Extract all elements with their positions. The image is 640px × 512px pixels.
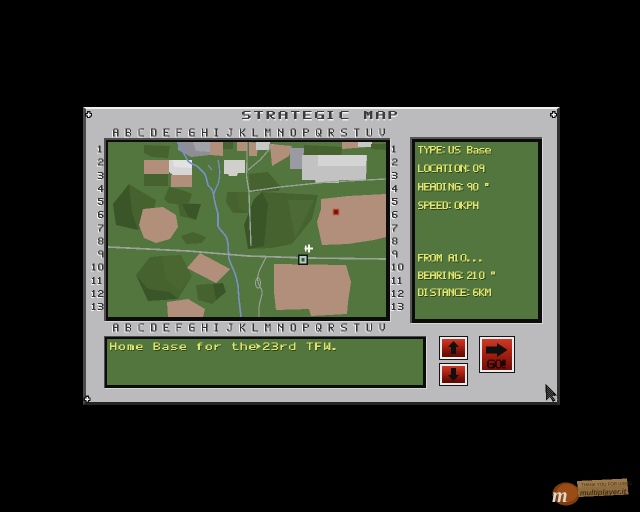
svg-text:m: m xyxy=(552,485,568,507)
svg-text:multiplayer.it: multiplayer.it xyxy=(580,487,627,498)
